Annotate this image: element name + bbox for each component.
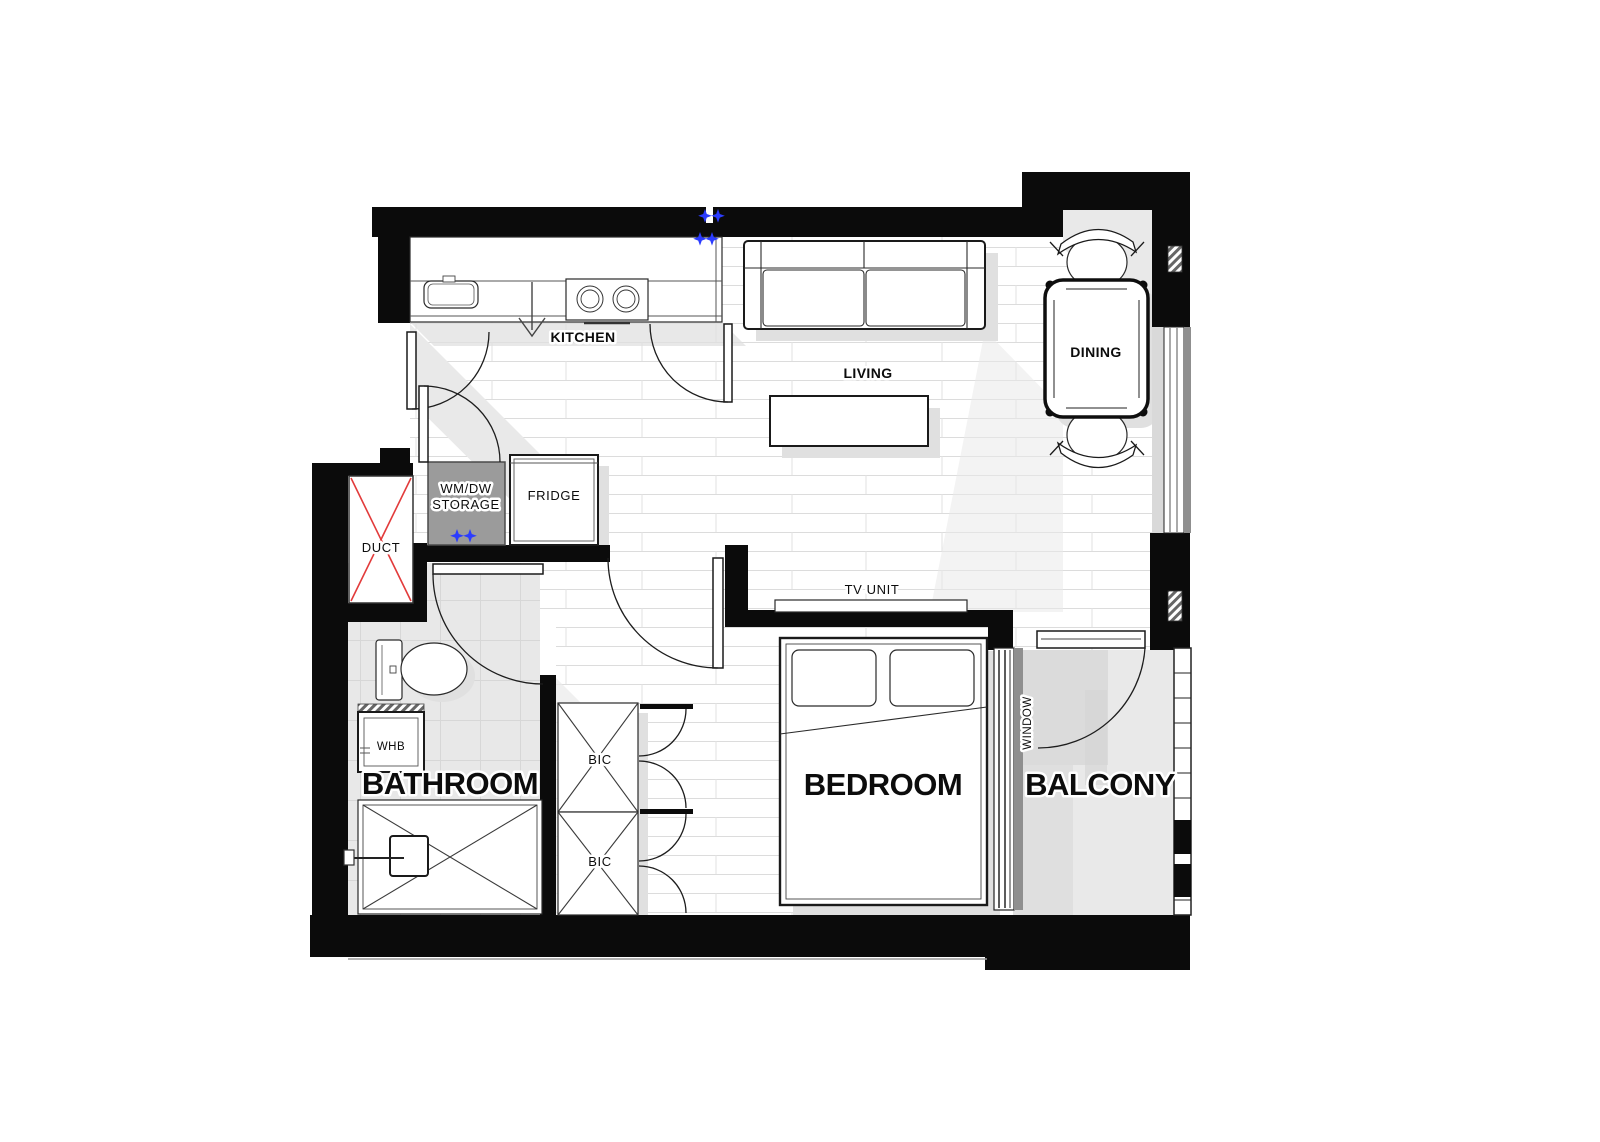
pillow-left	[792, 650, 876, 706]
label-window: WINDOW	[1022, 696, 1034, 749]
label-bathroom: BATHROOM	[362, 766, 538, 801]
label-storage: STORAGE	[432, 497, 500, 512]
hob	[566, 279, 648, 323]
label-bic-top: BIC	[588, 752, 611, 767]
wall-duct-bottom	[312, 603, 427, 622]
label-whb: WHB	[377, 741, 405, 753]
label-bic-bottom: BIC	[588, 854, 611, 869]
balcony-railing	[1174, 648, 1191, 915]
label-fridge: FRIDGE	[528, 488, 581, 503]
storage-door-leaf	[419, 386, 428, 462]
label-duct: DUCT	[362, 540, 401, 555]
floor-plan-page: KITCHEN LIVING DINING DUCT WM/DW STORAGE…	[0, 0, 1600, 1142]
entry-door-leaf	[407, 332, 416, 409]
window-dining-glass	[1184, 327, 1191, 533]
bic-track-mid	[640, 809, 693, 814]
wall-below-fridge	[415, 545, 610, 562]
bathroom-door-leaf	[433, 564, 543, 574]
tv-unit	[775, 600, 967, 612]
label-kitchen: KITCHEN	[550, 329, 615, 345]
label-bedroom: BEDROOM	[804, 767, 962, 802]
wall-hatch-marker-upper	[1168, 246, 1182, 272]
wall-bedroom-door-stub	[725, 545, 748, 627]
wash-hand-basin	[358, 704, 424, 772]
wall-left	[312, 463, 348, 957]
label-dining: DINING	[1070, 344, 1121, 360]
pillow-right	[890, 650, 974, 706]
kitchen-door-leaf	[724, 324, 732, 402]
wall-bottom-left	[310, 915, 985, 957]
wall-top-right-step	[1022, 172, 1063, 237]
wall-bedroom-balcony-stub	[988, 610, 1013, 650]
wall-bottom-right	[985, 915, 1190, 970]
window-dining	[1164, 327, 1191, 533]
bedroom-door-leaf	[713, 558, 723, 668]
label-balcony: BALCONY	[1025, 767, 1176, 802]
label-living: LIVING	[843, 365, 892, 381]
shower-valve	[344, 850, 354, 865]
wall-kitchen-left	[378, 237, 410, 323]
wall-hatch-marker-lower	[1168, 591, 1182, 621]
floor-plan-canvas: KITCHEN LIVING DINING DUCT WM/DW STORAGE…	[0, 0, 1600, 1142]
window-bedroom	[994, 648, 1023, 910]
bic-track-top	[640, 704, 693, 709]
label-wm-dw: WM/DW	[440, 481, 491, 496]
label-tv-unit: TV UNIT	[845, 582, 900, 597]
shadow-window-sill	[1152, 327, 1164, 533]
sofa	[744, 241, 985, 329]
sink	[424, 276, 478, 308]
wall-entry-jamb	[380, 448, 410, 467]
kitchen	[410, 237, 722, 336]
coffee-table	[770, 396, 928, 446]
shower	[344, 800, 542, 914]
window-bedroom-glass	[1014, 648, 1023, 910]
